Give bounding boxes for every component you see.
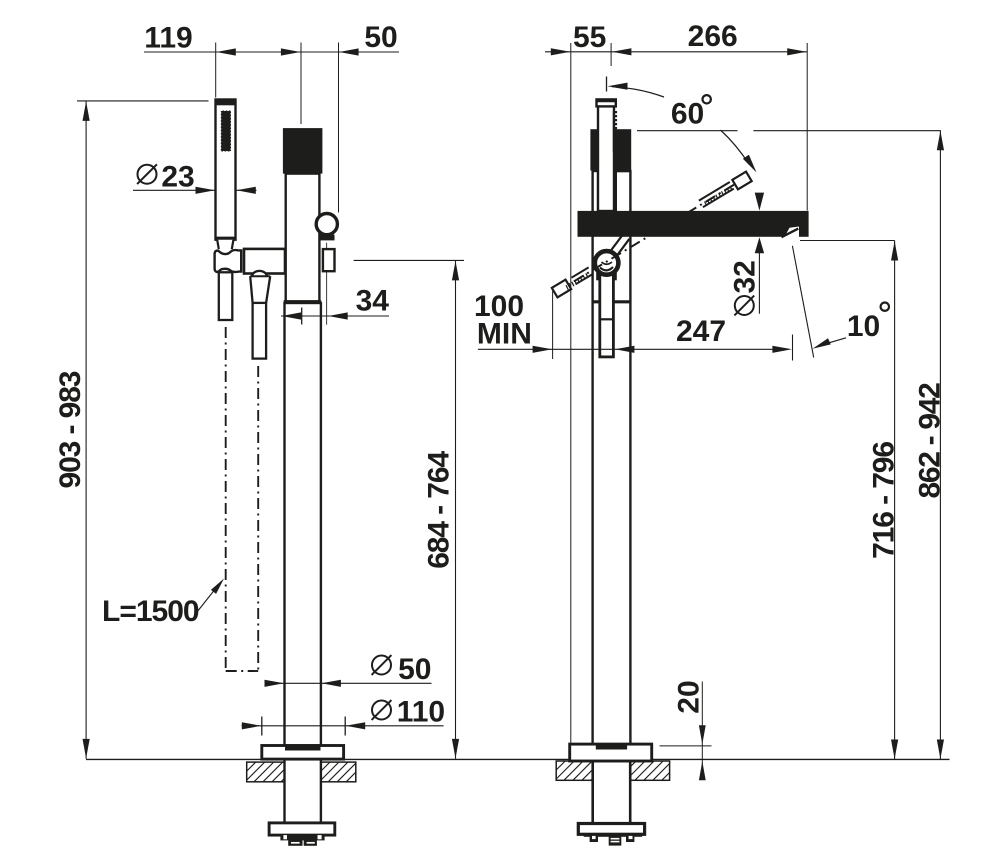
svg-text:862 - 942: 862 - 942 xyxy=(913,383,946,499)
svg-text:110: 110 xyxy=(397,696,445,729)
svg-text:50: 50 xyxy=(398,653,431,686)
svg-text:266: 266 xyxy=(688,20,738,53)
svg-text:34: 34 xyxy=(356,285,390,318)
svg-text:119: 119 xyxy=(144,22,192,55)
svg-text:247: 247 xyxy=(676,315,726,348)
svg-text:23: 23 xyxy=(161,161,194,194)
svg-text:L=1500: L=1500 xyxy=(102,595,199,628)
svg-text:903 - 983: 903 - 983 xyxy=(54,371,87,488)
svg-text:32: 32 xyxy=(729,260,762,293)
svg-text:20: 20 xyxy=(673,680,706,713)
svg-text:MIN: MIN xyxy=(477,318,532,351)
svg-text:50: 50 xyxy=(364,21,397,54)
svg-text:10: 10 xyxy=(847,310,880,343)
svg-text:684 - 764: 684 - 764 xyxy=(422,451,455,569)
svg-text:55: 55 xyxy=(573,21,606,54)
svg-text:716 - 796: 716 - 796 xyxy=(868,442,901,559)
svg-text:60: 60 xyxy=(671,98,704,131)
